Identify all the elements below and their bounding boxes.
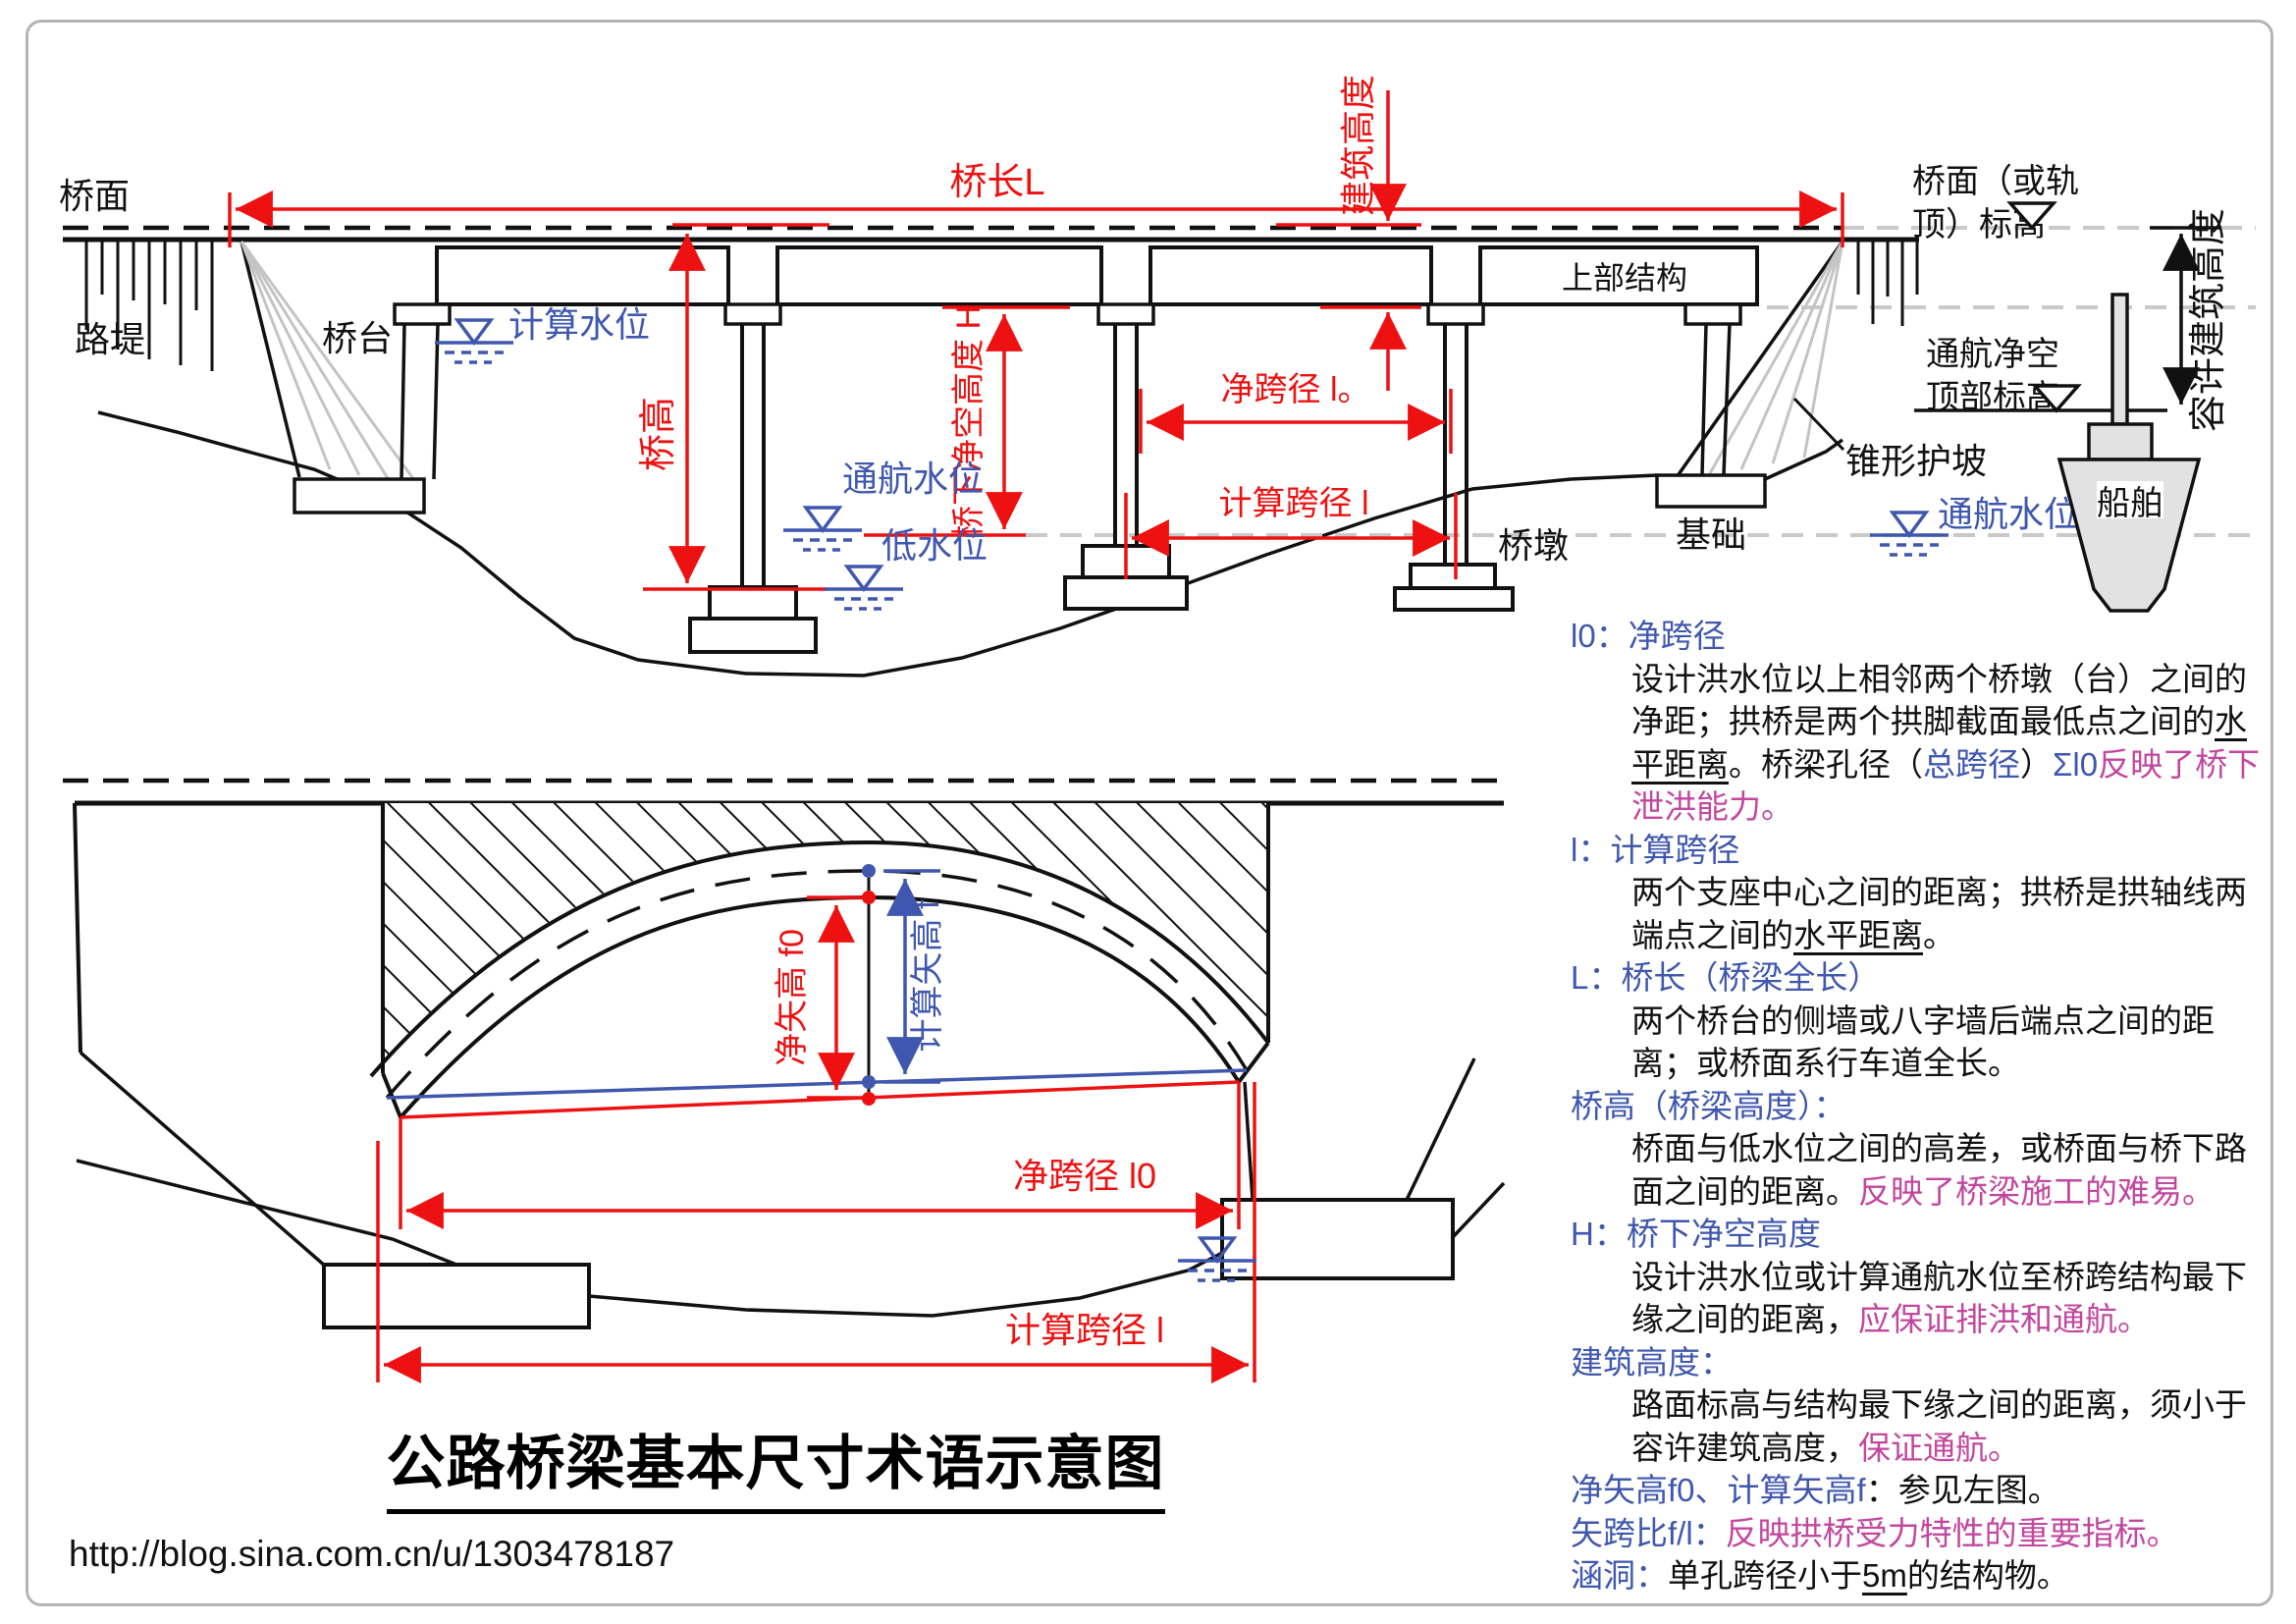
definition-line: 端点之间的水平距离。 — [1571, 914, 2268, 957]
definition-line: 净距；拱桥是两个拱脚截面最低点之间的水 — [1571, 700, 2268, 743]
definition-line: L：桥长（桥梁全长） — [1571, 956, 2268, 1000]
diagram-title: 公路桥梁基本尺寸术语示意图 — [363, 1416, 1188, 1514]
definition-line: 平距离。桥梁孔径（总跨径）Σl0反映了桥下 — [1571, 743, 2268, 786]
definition-line: 面之间的距离。反映了桥梁施工的难易。 — [1571, 1170, 2268, 1214]
definition-line: H：桥下净空高度 — [1571, 1213, 2268, 1256]
definition-line: 两个桥台的侧墙或八字墙后端点之间的距 — [1571, 1000, 2268, 1043]
definition-line: l：计算跨径 — [1571, 829, 2268, 872]
definition-line: 建筑高度： — [1571, 1341, 2268, 1384]
definition-line: 泄洪能力。 — [1571, 785, 2268, 829]
definition-line: 路面标高与结构最下缘之间的距离，须小于 — [1571, 1383, 2268, 1427]
definition-line: 桥面与低水位之间的高差，或桥面与桥下路 — [1571, 1127, 2268, 1170]
definition-line: 矢跨比f/l：反映拱桥受力特性的重要指标。 — [1571, 1512, 2268, 1555]
definitions-list: l0：净跨径设计洪水位以上相邻两个桥墩（台）之间的净距；拱桥是两个拱脚截面最低点… — [1571, 615, 2268, 1597]
definition-line: 桥高（桥梁高度）： — [1571, 1085, 2268, 1128]
definition-line: 设计洪水位或计算通航水位至桥跨结构最下 — [1571, 1256, 2268, 1299]
definition-line: l0：净跨径 — [1571, 615, 2268, 658]
definition-line: 容许建筑高度，保证通航。 — [1571, 1427, 2268, 1470]
definition-line: 两个支座中心之间的距离；拱桥是拱轴线两 — [1571, 871, 2268, 914]
definition-line: 设计洪水位以上相邻两个桥墩（台）之间的 — [1571, 658, 2268, 701]
source-url: http://blog.sina.com.cn/u/1303478187 — [69, 1534, 674, 1575]
definition-line: 涵洞：单孔跨径小于5m的结构物。 — [1571, 1554, 2268, 1597]
page: 桥长L 建筑高度 净跨径 l。 计算跨径 l 桥高 — [0, 0, 2296, 1624]
definition-line: 净矢高f0、计算矢高f：参见左图。 — [1571, 1469, 2268, 1512]
definition-line: 离；或桥面系行车道全长。 — [1571, 1042, 2268, 1085]
definition-line: 缘之间的距离，应保证排洪和通航。 — [1571, 1298, 2268, 1341]
